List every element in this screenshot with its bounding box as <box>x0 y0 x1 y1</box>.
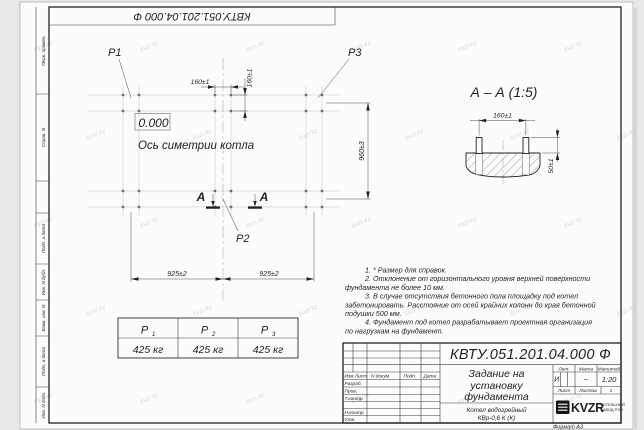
sheets-label: Листов <box>578 388 597 394</box>
elevation-value: 0.000 <box>139 116 169 130</box>
sheets-value: 1 <box>610 388 613 394</box>
scale-label: Масштаб <box>598 366 621 372</box>
section-dim-height-text: 50±1 <box>548 158 555 173</box>
load-col-sub: 2 <box>211 332 216 338</box>
rev-col-data: Дата <box>423 373 437 379</box>
mass-value: – <box>583 377 588 384</box>
doc-title-line1: Задание на <box>469 368 525 380</box>
scale-value: 1:20 <box>602 375 617 384</box>
row-razrab: Разраб. <box>345 381 362 387</box>
section-title: А – А (1:5) <box>470 84 538 100</box>
designation-inverted: КВТУ.051.201.04.000 Ф <box>133 10 251 22</box>
stamp-podp-data-2: Подп. и дата <box>41 347 46 376</box>
stamp-perv-primen: Перв. примен. <box>41 35 46 66</box>
doc-title-line3: фундамента <box>464 391 529 403</box>
note-line: 3. В случае отсутствия бетонного пола пл… <box>365 292 578 301</box>
rev-col-podp: Подп. <box>404 373 417 379</box>
drawing-svg: kvzr.kzkvzr.kzkvzr.kzkvzr.kzkvzr.kzkvzr.… <box>0 0 644 430</box>
stamp-sprav-n: Справ. N <box>41 127 46 147</box>
note-line: по нагрузкам на фундамент. <box>345 326 444 335</box>
company-line2: ЗАВОД РЭП <box>601 407 623 412</box>
format-note: Формат А3 <box>553 425 584 430</box>
notes-block: 1. * Размер для справок. 2. Отклонение о… <box>344 266 596 336</box>
title-designation: КВТУ.051.201.04.000 Ф <box>450 347 611 363</box>
anchor-bolt-right <box>523 138 529 154</box>
lit-label: Лит. <box>557 366 569 372</box>
stamp-inv-dubl: Инв. N дубл. <box>41 269 46 296</box>
note-line: фундамента не более 10 мм. <box>345 283 445 292</box>
paper-shadow <box>633 8 637 429</box>
row-tkontr: Т.контр. <box>345 396 364 402</box>
rev-col-izm-list: Изм.Лист <box>345 373 368 379</box>
stamp-podp-data-1: Подп. и дата <box>41 224 46 253</box>
load-col-sym: Р <box>141 325 149 337</box>
product-line2: КВр-0,6 К (К) <box>478 415 515 422</box>
load-label-p2: Р2 <box>236 233 249 245</box>
mass-label: Масса <box>579 366 594 372</box>
note-line: 2. Отклонение от горизонтального уровня … <box>364 274 590 283</box>
load-col-sym: Р <box>201 325 209 337</box>
doc-title-line2: установку <box>469 380 523 392</box>
note-line: 1. * Размер для справок. <box>365 266 447 275</box>
sheet-label: Лист <box>557 388 570 394</box>
dim-span-right-text: 925±2 <box>259 271 279 278</box>
anchor-bolt-left <box>476 138 482 154</box>
section-letter-left: А <box>196 190 206 204</box>
row-nkontr: Н.контр. <box>345 410 365 416</box>
load-col-sub: 1 <box>152 332 155 338</box>
note-line: подушки 500 мм. <box>345 309 402 318</box>
load-label-p3: Р3 <box>348 47 362 59</box>
section-dim-spacing-text: 160±1 <box>493 113 512 120</box>
dim-bolt-x-text: 160±1 <box>191 79 210 86</box>
section-letter-right: А <box>259 190 269 204</box>
dim-bolt-y-text: 160±1 <box>247 68 254 87</box>
product-line1: Котел водогрейный <box>467 406 527 414</box>
load-value: 425 кг <box>253 344 284 356</box>
drawing-sheet: kvzr.kzkvzr.kzkvzr.kzkvzr.kzkvzr.kzkvzr.… <box>0 0 644 430</box>
stamp-inv-podl: Инв. N подл. <box>41 392 46 419</box>
row-prov: Пров. <box>345 388 358 394</box>
logo-text: KVZR <box>571 401 604 415</box>
load-label-p1: Р1 <box>108 47 121 59</box>
dim-span-left-text: 925±2 <box>167 271 187 278</box>
note-line: забетонировать. Расстояние от осей крайн… <box>344 300 596 309</box>
axis-caption: Ось симетрии котла <box>138 140 254 152</box>
rev-col-n-dokum: N докум. <box>371 373 390 379</box>
load-value: 425 кг <box>193 344 224 356</box>
row-utv: Утв. <box>345 417 356 423</box>
note-line: 4. Фундамент под котел разрабатывает про… <box>365 318 592 327</box>
bolt-pocket-left <box>476 154 483 175</box>
dim-depth-text: 960±3 <box>359 141 366 161</box>
stamp-vzam-inv: Взам. инв. N <box>41 304 46 331</box>
bolt-pocket-right <box>523 154 530 175</box>
load-col-sym: Р <box>261 325 269 337</box>
load-value: 425 кг <box>133 344 164 356</box>
